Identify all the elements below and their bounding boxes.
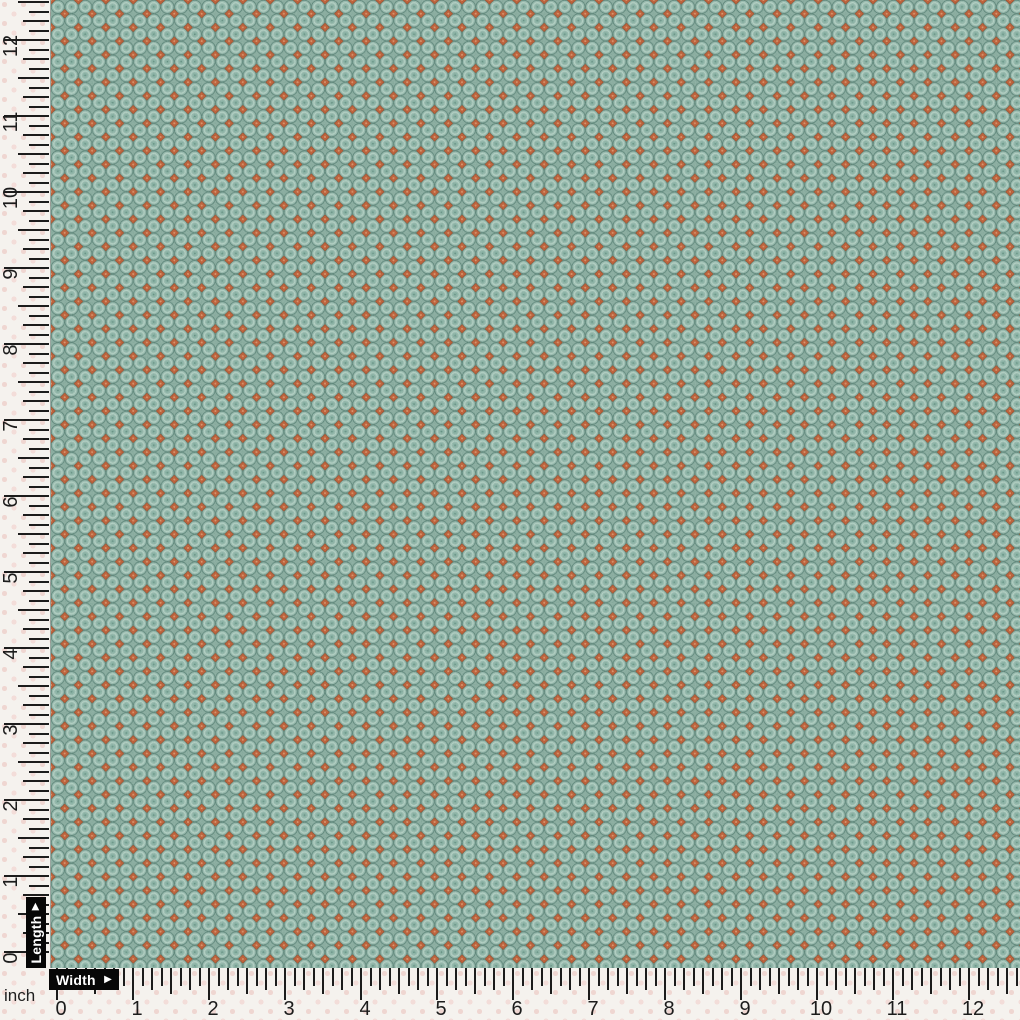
tick bbox=[29, 125, 49, 127]
tick bbox=[29, 391, 49, 393]
tick bbox=[731, 968, 733, 986]
tick bbox=[29, 49, 49, 51]
width-label: Width ▶ bbox=[49, 969, 119, 990]
tick bbox=[29, 334, 49, 336]
tick bbox=[170, 968, 172, 994]
tick bbox=[712, 968, 714, 986]
tick bbox=[29, 619, 49, 621]
tick bbox=[683, 968, 685, 990]
tick bbox=[968, 968, 970, 1000]
tick bbox=[18, 533, 49, 535]
tick bbox=[674, 968, 676, 986]
tick bbox=[987, 968, 989, 990]
tick bbox=[341, 968, 343, 990]
tick bbox=[29, 353, 49, 355]
tick bbox=[18, 761, 49, 763]
ruler-number: 2 bbox=[193, 1000, 233, 1018]
tick bbox=[455, 968, 457, 990]
tick bbox=[189, 968, 191, 990]
tick bbox=[29, 600, 49, 602]
tick bbox=[322, 968, 324, 994]
tick bbox=[29, 467, 49, 469]
tick bbox=[370, 968, 372, 986]
fabric-pattern-svg bbox=[51, 0, 1020, 968]
ruler-number: 9 bbox=[1, 254, 21, 294]
tick bbox=[550, 968, 552, 994]
tick bbox=[408, 968, 410, 986]
tick bbox=[23, 666, 49, 668]
tick bbox=[636, 968, 638, 986]
ruler-number: 3 bbox=[269, 1000, 309, 1018]
tick bbox=[29, 524, 49, 526]
length-label: Length ▶ bbox=[26, 897, 46, 968]
tick bbox=[18, 381, 49, 383]
tick bbox=[256, 968, 258, 986]
tick bbox=[29, 372, 49, 374]
tick bbox=[484, 968, 486, 986]
ruler-number: 6 bbox=[497, 1000, 537, 1018]
tick bbox=[626, 968, 628, 994]
ruler-number: 5 bbox=[1, 558, 21, 598]
tick bbox=[541, 968, 543, 986]
tick bbox=[29, 562, 49, 564]
tick bbox=[29, 752, 49, 754]
tick bbox=[23, 134, 49, 136]
unit-label: inch bbox=[4, 986, 35, 1006]
tick bbox=[142, 968, 144, 986]
tick bbox=[23, 96, 49, 98]
tick bbox=[208, 968, 210, 1000]
ruler-number: 12 bbox=[1, 26, 21, 66]
tick bbox=[23, 628, 49, 630]
tick bbox=[835, 968, 837, 990]
length-label-text: Length bbox=[28, 915, 44, 963]
tick bbox=[23, 704, 49, 706]
ruler-number: 9 bbox=[725, 1000, 765, 1018]
tick bbox=[29, 258, 49, 260]
tick bbox=[436, 968, 438, 1000]
tick bbox=[379, 968, 381, 990]
tick bbox=[123, 968, 125, 986]
length-label-inner: Length ▶ bbox=[26, 897, 46, 968]
tick bbox=[693, 968, 695, 986]
tick bbox=[816, 968, 818, 1000]
tick bbox=[199, 968, 201, 986]
tick bbox=[23, 552, 49, 554]
tick bbox=[778, 968, 780, 994]
tick bbox=[29, 144, 49, 146]
tick bbox=[503, 968, 505, 986]
tick bbox=[29, 163, 49, 165]
fabric-swatch bbox=[50, 0, 1020, 968]
tick bbox=[23, 894, 49, 896]
tick bbox=[1006, 968, 1008, 994]
tick bbox=[237, 968, 239, 986]
tick bbox=[18, 229, 49, 231]
tick bbox=[598, 968, 600, 986]
vertical-ruler: 0123456789101112 bbox=[0, 0, 50, 968]
tick bbox=[417, 968, 419, 990]
tick bbox=[29, 828, 49, 830]
tick bbox=[23, 286, 49, 288]
ruler-number: 8 bbox=[649, 1000, 689, 1018]
ruler-number: 8 bbox=[1, 330, 21, 370]
tick bbox=[911, 968, 913, 990]
tick bbox=[23, 58, 49, 60]
tick bbox=[398, 968, 400, 994]
tick bbox=[940, 968, 942, 986]
tick bbox=[29, 486, 49, 488]
width-label-text: Width bbox=[56, 972, 96, 988]
tick bbox=[29, 30, 49, 32]
tick bbox=[493, 968, 495, 990]
tick bbox=[23, 856, 49, 858]
tick bbox=[29, 714, 49, 716]
tick bbox=[512, 968, 514, 1000]
ruler-number: 4 bbox=[1, 634, 21, 674]
tick bbox=[180, 968, 182, 986]
tick bbox=[465, 968, 467, 986]
tick bbox=[23, 248, 49, 250]
tick bbox=[29, 448, 49, 450]
ruler-number: 7 bbox=[573, 1000, 613, 1018]
tick bbox=[892, 968, 894, 1000]
ruler-number: 1 bbox=[1, 862, 21, 902]
tick bbox=[265, 968, 267, 990]
tick bbox=[655, 968, 657, 986]
tick bbox=[797, 968, 799, 990]
tick bbox=[227, 968, 229, 990]
tick bbox=[740, 968, 742, 1000]
tick bbox=[332, 968, 334, 986]
tick bbox=[29, 220, 49, 222]
tick bbox=[883, 968, 885, 986]
tick bbox=[18, 153, 49, 155]
tick bbox=[873, 968, 875, 990]
tick bbox=[18, 685, 49, 687]
ruler-number: 11 bbox=[877, 1000, 917, 1018]
tick bbox=[446, 968, 448, 986]
tick bbox=[18, 77, 49, 79]
tick bbox=[997, 968, 999, 986]
tick bbox=[360, 968, 362, 1000]
tick bbox=[351, 968, 353, 986]
arrow-right-icon: ▶ bbox=[104, 975, 112, 985]
tick bbox=[23, 210, 49, 212]
tick bbox=[29, 296, 49, 298]
tick bbox=[427, 968, 429, 986]
tick bbox=[702, 968, 704, 994]
tick bbox=[29, 182, 49, 184]
tick bbox=[579, 968, 581, 986]
tick bbox=[750, 968, 752, 986]
tick bbox=[921, 968, 923, 986]
tick bbox=[389, 968, 391, 986]
ruler-number: 4 bbox=[345, 1000, 385, 1018]
tick bbox=[930, 968, 932, 994]
tick bbox=[531, 968, 533, 990]
tick bbox=[275, 968, 277, 986]
tick bbox=[294, 968, 296, 986]
tick bbox=[23, 20, 49, 22]
tick bbox=[721, 968, 723, 990]
arrow-up-icon: ▶ bbox=[31, 902, 41, 910]
tick bbox=[959, 968, 961, 986]
tick bbox=[29, 315, 49, 317]
tick bbox=[569, 968, 571, 990]
tick bbox=[29, 239, 49, 241]
tick bbox=[607, 968, 609, 990]
tick bbox=[474, 968, 476, 994]
ruler-number: 11 bbox=[1, 102, 21, 142]
tick bbox=[23, 400, 49, 402]
tick bbox=[29, 866, 49, 868]
tick bbox=[29, 11, 49, 13]
tick bbox=[18, 837, 49, 839]
tick bbox=[29, 885, 49, 887]
ruler-number: 6 bbox=[1, 482, 21, 522]
tick bbox=[949, 968, 951, 990]
tick bbox=[23, 476, 49, 478]
tick bbox=[29, 410, 49, 412]
tick bbox=[978, 968, 980, 986]
tick bbox=[313, 968, 315, 986]
tick bbox=[23, 780, 49, 782]
tick bbox=[826, 968, 828, 986]
horizontal-ruler: 0123456789101112 bbox=[0, 968, 1020, 1020]
tick bbox=[284, 968, 286, 1000]
tick bbox=[23, 362, 49, 364]
tick bbox=[29, 429, 49, 431]
tick bbox=[769, 968, 771, 986]
tick bbox=[18, 1, 49, 3]
tick bbox=[23, 818, 49, 820]
tick bbox=[29, 68, 49, 70]
tick bbox=[29, 847, 49, 849]
ruler-number: 10 bbox=[801, 1000, 841, 1018]
ruler-number: 7 bbox=[1, 406, 21, 446]
tick bbox=[522, 968, 524, 986]
tick bbox=[29, 676, 49, 678]
tick bbox=[29, 638, 49, 640]
tick bbox=[645, 968, 647, 990]
tick bbox=[18, 305, 49, 307]
tick bbox=[788, 968, 790, 986]
ruler-number: 12 bbox=[953, 1000, 993, 1018]
tick bbox=[23, 590, 49, 592]
tick bbox=[29, 733, 49, 735]
ruler-number: 0 bbox=[41, 1000, 81, 1018]
tick bbox=[18, 609, 49, 611]
tick bbox=[161, 968, 163, 986]
fabric-listing-image: 0123456789101112 0123456789101112 Length… bbox=[0, 0, 1020, 1020]
tick bbox=[29, 277, 49, 279]
tick bbox=[151, 968, 153, 990]
tick bbox=[218, 968, 220, 986]
tick bbox=[29, 771, 49, 773]
tick bbox=[132, 968, 134, 1000]
tick bbox=[807, 968, 809, 986]
tick bbox=[759, 968, 761, 990]
ruler-number: 10 bbox=[1, 178, 21, 218]
tick bbox=[864, 968, 866, 986]
tick bbox=[23, 514, 49, 516]
tick bbox=[588, 968, 590, 1000]
tick bbox=[23, 324, 49, 326]
tick bbox=[29, 657, 49, 659]
tick bbox=[246, 968, 248, 994]
tick bbox=[29, 809, 49, 811]
tick bbox=[29, 87, 49, 89]
tick bbox=[29, 201, 49, 203]
ruler-number: 1 bbox=[117, 1000, 157, 1018]
ruler-number: 3 bbox=[1, 710, 21, 750]
ruler-number: 2 bbox=[1, 786, 21, 826]
tick bbox=[902, 968, 904, 986]
tick bbox=[29, 695, 49, 697]
tick bbox=[664, 968, 666, 1000]
tick bbox=[617, 968, 619, 986]
tick bbox=[23, 172, 49, 174]
tick bbox=[854, 968, 856, 994]
tick bbox=[29, 106, 49, 108]
tick bbox=[23, 438, 49, 440]
tick bbox=[1016, 968, 1018, 986]
tick bbox=[23, 742, 49, 744]
tick bbox=[29, 581, 49, 583]
tick bbox=[18, 457, 49, 459]
tick bbox=[29, 543, 49, 545]
tick bbox=[29, 505, 49, 507]
tick bbox=[29, 790, 49, 792]
tick bbox=[560, 968, 562, 986]
ruler-number: 5 bbox=[421, 1000, 461, 1018]
tick bbox=[845, 968, 847, 986]
tick bbox=[303, 968, 305, 990]
